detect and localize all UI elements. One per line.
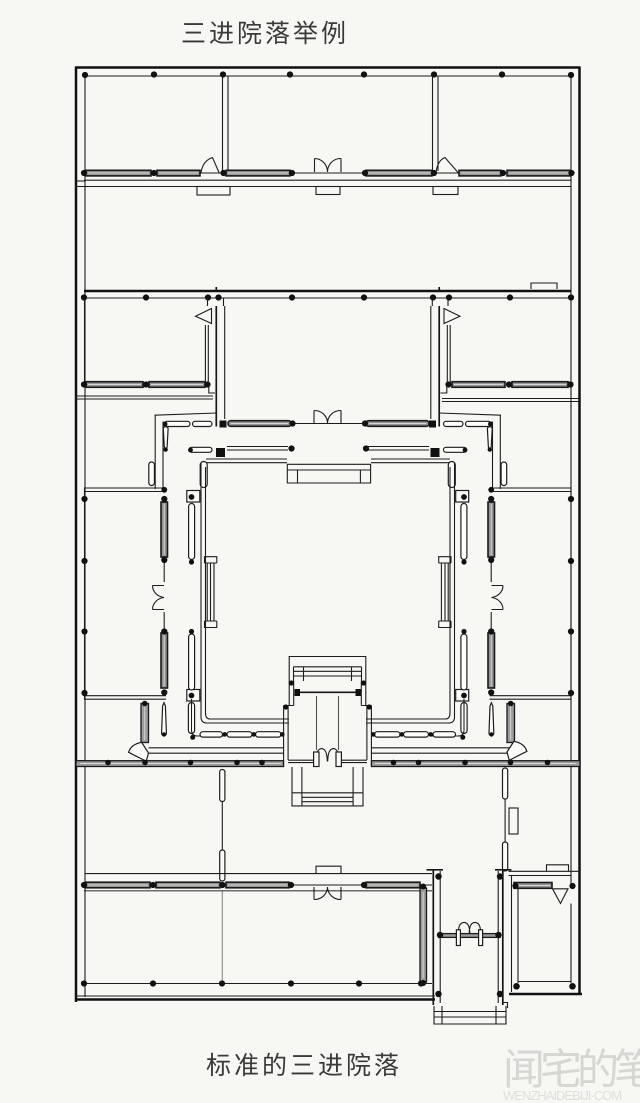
svg-text:WENZHAIDEBIJI·COM: WENZHAIDEBIJI·COM <box>503 1088 621 1103</box>
svg-text:标准的三进院落: 标准的三进院落 <box>206 1052 402 1080</box>
svg-text:闻宅的笔记: 闻宅的笔记 <box>503 1046 640 1093</box>
svg-text:三进院落举例: 三进院落举例 <box>181 20 349 48</box>
